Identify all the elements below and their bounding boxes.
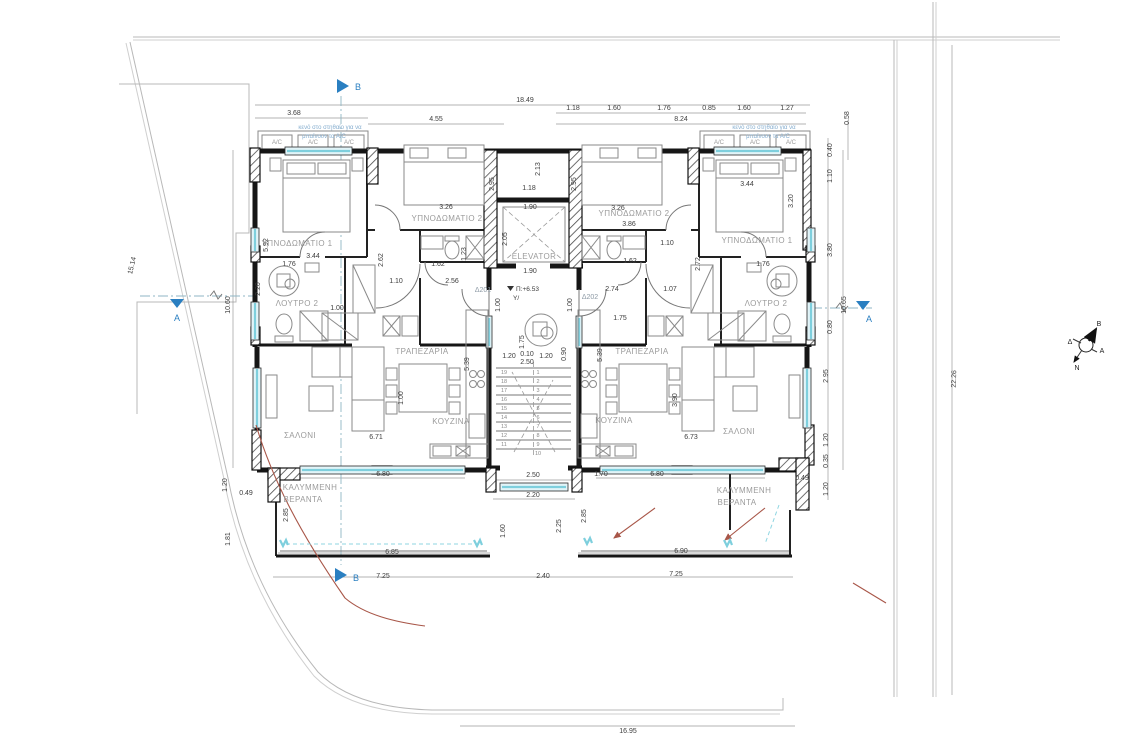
bed-left-bedroom1: [270, 158, 363, 232]
dining-table-left: [386, 364, 460, 414]
compass-icon: [1073, 329, 1097, 362]
compass-label-e: Α: [1100, 348, 1105, 355]
coffee-table-left: [309, 386, 333, 411]
dim-label: 1.60: [737, 105, 751, 112]
dim-label: 2.72: [695, 257, 702, 271]
dim-label: 2.20: [255, 282, 262, 296]
dim-label: 7.25: [376, 573, 390, 580]
bed-left-bedroom2: [404, 145, 484, 205]
toilet: [445, 241, 459, 259]
dim-label: 6.80: [650, 471, 664, 478]
dim-label: 1.10: [389, 278, 403, 285]
dining-table-right: [606, 364, 680, 414]
tv-unit-right: [789, 375, 800, 418]
gutter-mark: [280, 540, 288, 546]
dim-label: 15.14: [127, 256, 138, 275]
sink: [305, 263, 319, 272]
ac-note-left-2: μπαίνουν τα Α/C: [302, 134, 346, 140]
dim-label: 0.90: [561, 347, 568, 361]
section-a-left-arrow: [170, 299, 184, 308]
room-label-veranda-right-1: ΚΑΛΥΜΜΕΝΗ: [717, 486, 772, 495]
dim-label: 3.26: [439, 204, 453, 211]
dim-label: 8.24: [674, 116, 688, 123]
dim-label: 1.62: [431, 261, 445, 268]
dim-label: 5.39: [597, 348, 604, 362]
room-label-dining-left: ΤΡΑΠΕΖΑΡΙΑ: [395, 347, 448, 356]
dim-label: 3.90: [672, 393, 679, 407]
step-number: 12: [501, 433, 507, 439]
apartment-label-d202: Δ202: [582, 294, 598, 301]
vanity: [421, 236, 443, 249]
bed-right-bedroom2: [582, 145, 662, 205]
dim-label: 3.68: [287, 110, 301, 117]
dim-label: 1.70: [594, 471, 608, 478]
step-number: 2: [536, 379, 539, 385]
apartment-label-d201: Δ201: [475, 287, 491, 294]
step-number: 1: [536, 370, 539, 376]
dim-label: 3.80: [827, 243, 834, 257]
room-label-bath2-left: ΛΟΥΤΡΟ 2: [276, 299, 319, 308]
elevator-label: ELEVATOR: [512, 252, 557, 261]
room-label-veranda-left-1: ΚΑΛΥΜΜΕΝΗ: [283, 483, 338, 492]
ac-label: A/C: [344, 140, 355, 146]
dim-label: 1.75: [519, 335, 526, 349]
room-label-veranda-left-2: ΒΕΡΑΝΤΑ: [284, 495, 323, 504]
dim-label: 1.00: [495, 298, 502, 312]
dim-label: 6.90: [674, 548, 688, 555]
dim-label: 18.49: [516, 97, 534, 104]
dim-label: 2.85: [283, 508, 290, 522]
dim-label: 6.73: [684, 434, 698, 441]
dim-label: 2.05: [502, 232, 509, 246]
dim-label: 3.26: [611, 205, 625, 212]
floor-plan-sheet: ΥΠΝΟΔΩΜΑΤΙΟ 1 ΥΠΝΟΔΩΜΑΤΙΟ 2 ΥΠΝΟΔΩΜΑΤΙΟ …: [0, 0, 1142, 735]
dim-label: 1.27: [780, 105, 794, 112]
toilet: [276, 314, 292, 334]
dim-label: 0.85: [702, 105, 716, 112]
dim-label: 2.95: [823, 369, 830, 383]
dim-label: 2.40: [536, 573, 550, 580]
dim-label: 1.20: [823, 482, 830, 496]
neighbor-building-outline: [119, 84, 249, 414]
dim-label: 2.13: [535, 162, 542, 176]
dim-label: 1.90: [523, 268, 537, 275]
ac-label: A/C: [714, 140, 725, 146]
level-triangle-icon: [507, 286, 514, 291]
dim-label: 1.07: [663, 286, 677, 293]
gutter-mark: [724, 540, 732, 546]
dim-label: 2.85: [581, 509, 588, 523]
room-label-veranda-right-2: ΒΕΡΑΝΤΑ: [718, 498, 757, 507]
dim-label: 3.44: [740, 181, 754, 188]
dim-label: 0.49: [795, 475, 809, 482]
section-a-left-label: A: [174, 313, 180, 323]
toilet: [607, 241, 621, 259]
dim-label: 0.10: [520, 351, 534, 358]
room-label-bedroom1-right: ΥΠΝΟΔΩΜΑΤΙΟ 1: [722, 236, 793, 245]
dim-label: 6.71: [369, 434, 383, 441]
dim-label: 1.18: [566, 105, 580, 112]
sofa-left: [266, 347, 384, 431]
ac-label: A/C: [750, 140, 761, 146]
ac-label: A/C: [272, 140, 283, 146]
ac-label: A/C: [308, 140, 319, 146]
dim-label: 1.81: [225, 532, 232, 546]
section-b-top-arrow: [337, 79, 349, 93]
dim-label: 5.92: [263, 238, 270, 252]
dim-label: 22.26: [951, 370, 959, 388]
step-number: 17: [501, 388, 507, 394]
dim-label: 6.80: [376, 471, 390, 478]
dim-label: 1.90: [523, 204, 537, 211]
dim-label: 6.85: [385, 549, 399, 556]
compass-label-w: Δ: [1068, 339, 1073, 346]
level-mark-sub: Υ/: [513, 295, 519, 302]
dim-label: 1.10: [660, 240, 674, 247]
step-number: 14: [501, 415, 507, 421]
dim-label: 0.35: [823, 454, 830, 468]
dim-label: 0.80: [827, 320, 834, 334]
dim-label: 1.76: [282, 261, 296, 268]
dim-label: 1.00: [330, 305, 344, 312]
bed-right-bedroom1: [703, 158, 796, 232]
step-number: 16: [501, 397, 507, 403]
dim-label: 3.44: [306, 253, 320, 260]
ac-note-right-2: μπαίνουν τα Α/C: [746, 134, 790, 140]
section-a-right-label: A: [866, 314, 872, 324]
step-number: 3: [536, 388, 539, 394]
step-number: 6: [536, 415, 539, 421]
dim-label: 7.25: [669, 571, 683, 578]
dim-label: 1.20: [539, 353, 553, 360]
lobby-wheelchair: [525, 314, 557, 346]
accent-marks: [256, 425, 886, 626]
room-label-dining-right: ΤΡΑΠΕΖΑΡΙΑ: [615, 347, 668, 356]
dim-label: 3.86: [622, 221, 636, 228]
dim-label: 10.65: [841, 296, 848, 314]
dim-label: 16.95: [619, 728, 637, 735]
toilet: [774, 314, 790, 334]
section-a-right-arrow: [856, 301, 870, 310]
coffee-table-right: [733, 386, 757, 411]
dim-label: 1.20: [823, 433, 830, 447]
dim-label: 2.50: [520, 359, 534, 366]
dim-label: 1.76: [657, 105, 671, 112]
dim-label: 0.49: [239, 490, 253, 497]
dim-label: 1.76: [756, 261, 770, 268]
dim-label: 1.00: [567, 298, 574, 312]
dim-label: 2.74: [605, 286, 619, 293]
compass-label-n: Ν: [1074, 365, 1079, 372]
room-label-kitchen-left: ΚΟΥΖΙΝΑ: [432, 417, 470, 426]
room-label-bedroom2-left: ΥΠΝΟΔΩΜΑΤΙΟ 2: [412, 214, 483, 223]
dim-label: 1.20: [222, 478, 229, 492]
floor-plan-drawing: ΥΠΝΟΔΩΜΑΤΙΟ 1 ΥΠΝΟΔΩΜΑΤΙΟ 2 ΥΠΝΟΔΩΜΑΤΙΟ …: [0, 0, 1142, 735]
staircase: [496, 362, 571, 458]
tv-unit-left: [266, 375, 277, 418]
dim-label: 2.62: [378, 253, 385, 267]
dim-label: 2.56: [445, 278, 459, 285]
gutter-mark: [584, 538, 592, 544]
dim-label: 1.00: [398, 391, 405, 405]
dim-label: 0.58: [844, 111, 851, 125]
section-b-bottom-label: B: [353, 573, 359, 583]
dim-label: 1.20: [502, 353, 516, 360]
dim-label: 1.60: [500, 524, 507, 538]
ac-label: A/C: [786, 140, 797, 146]
ac-note-right-1: κενό στο στηθαίο για να: [732, 124, 796, 131]
dim-label: 5.39: [464, 357, 471, 371]
plot-boundary-lines: [119, 2, 1060, 714]
ac-note-left-1: κενό στο στηθαίο για να: [298, 124, 362, 131]
step-number: 7: [536, 424, 539, 430]
room-label-bedroom1-left: ΥΠΝΟΔΩΜΑΤΙΟ 1: [262, 239, 333, 248]
sofa-right: [682, 347, 800, 431]
room-label-kitchen-right: ΚΟΥΖΙΝΑ: [595, 416, 633, 425]
vanity: [623, 236, 645, 249]
section-b-bottom-arrow: [335, 568, 347, 582]
step-number: 4: [536, 397, 539, 403]
room-label-bath2-right: ΛΟΥΤΡΟ 2: [745, 299, 788, 308]
dim-label: 1.62: [623, 258, 637, 265]
step-number: 15: [501, 406, 507, 412]
dim-label: 4.55: [429, 116, 443, 123]
dim-label: 2.20: [526, 492, 540, 499]
dim-label: 3.20: [788, 194, 795, 208]
step-number: 13: [501, 424, 507, 430]
dim-label: 1.18: [522, 185, 536, 192]
step-number: 11: [501, 442, 507, 448]
dim-label: 1.23: [461, 247, 468, 261]
dim-label: 2.25: [556, 519, 563, 533]
drain-arrow-1: [614, 508, 655, 538]
dim-label: 1.75: [613, 315, 627, 322]
dim-label: 0.40: [827, 143, 834, 157]
dim-label: 10.60: [225, 296, 232, 314]
bathroom1-right: [582, 236, 645, 259]
dim-label: 1.60: [607, 105, 621, 112]
bathroom1-left: [421, 236, 484, 259]
dim-label: 2.95: [489, 177, 496, 191]
dim-label: 1.10: [827, 169, 834, 183]
section-b-top-label: B: [355, 82, 361, 92]
step-number: 8: [536, 433, 539, 439]
level-mark: Π:+6.53: [516, 286, 539, 293]
step-number: 18: [501, 379, 507, 385]
dim-label: 2.50: [526, 472, 540, 479]
dim-label: 2.95: [571, 177, 578, 191]
room-label-salon-right: ΣΑΛΟΝΙ: [723, 427, 755, 436]
room-label-salon-left: ΣΑΛΟΝΙ: [284, 431, 316, 440]
gutter-mark: [474, 540, 482, 546]
step-number: 19: [501, 370, 507, 376]
step-number: 9: [536, 442, 539, 448]
compass-label-b: Β: [1097, 321, 1102, 328]
step-number: 5: [536, 406, 539, 412]
step-number: 10: [535, 451, 541, 457]
room-label-bedroom2-right: ΥΠΝΟΔΩΜΑΤΙΟ 2: [599, 209, 670, 218]
